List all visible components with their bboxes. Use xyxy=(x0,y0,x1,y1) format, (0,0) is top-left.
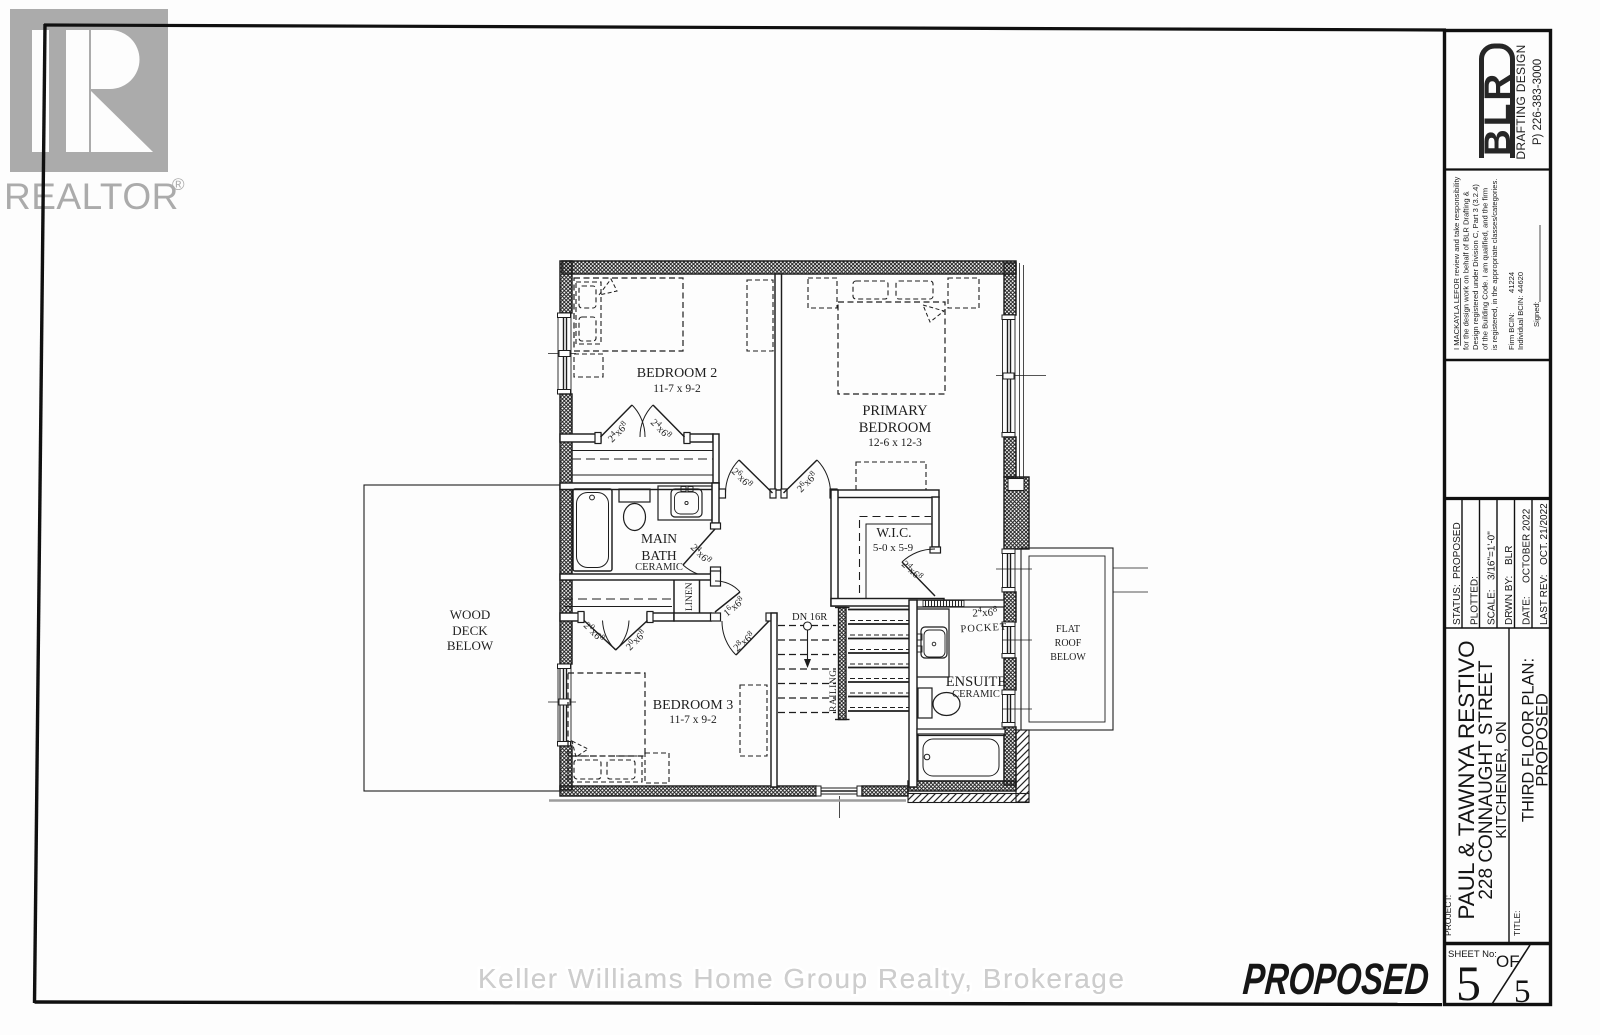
svg-text:OCT. 21/2022: OCT. 21/2022 xyxy=(1539,503,1550,565)
svg-text:of the Building Code. I am qua: of the Building Code. I am qualified, an… xyxy=(1481,188,1490,350)
svg-text:BATH: BATH xyxy=(641,548,677,563)
svg-text:41224: 41224 xyxy=(1507,272,1516,293)
svg-text:Design registered under Divisi: Design registered under Division C, Part… xyxy=(1471,184,1480,350)
svg-text:RAILING: RAILING xyxy=(829,669,839,712)
svg-text:for the design work on behalf: for the design work on behalf of BLR Dra… xyxy=(1462,191,1471,350)
svg-text:BEDROOM 3: BEDROOM 3 xyxy=(653,698,734,713)
svg-text:WOOD: WOOD xyxy=(450,607,490,622)
svg-text:26x68: 26x68 xyxy=(794,469,820,495)
svg-text:KITCHENER, ON: KITCHENER, ON xyxy=(1493,721,1510,839)
svg-text:BELOW: BELOW xyxy=(1050,652,1086,663)
svg-text:24x68: 24x68 xyxy=(648,416,674,442)
svg-text:DN 16R: DN 16R xyxy=(792,612,827,623)
svg-text:5: 5 xyxy=(1456,955,1481,1011)
svg-text:DECK: DECK xyxy=(452,623,488,638)
svg-text:SCALE:: SCALE: xyxy=(1487,589,1498,625)
svg-text:PLOTTED:: PLOTTED: xyxy=(1470,576,1481,625)
svg-text:Individual BCIN:: Individual BCIN: xyxy=(1516,296,1525,350)
svg-text:REALTOR: REALTOR xyxy=(4,176,179,217)
svg-text:BEDROOM 2: BEDROOM 2 xyxy=(637,366,718,381)
svg-text:W.I.C.: W.I.C. xyxy=(876,525,911,540)
svg-text:PROJECT:: PROJECT: xyxy=(1443,895,1453,936)
svg-text:OCTOBER 2022: OCTOBER 2022 xyxy=(1522,508,1533,583)
svg-text:44620: 44620 xyxy=(1516,272,1525,293)
svg-text:24x68: 24x68 xyxy=(605,419,631,445)
svg-text:I MACKAYLA LEFOR review and ta: I MACKAYLA LEFOR review and take respons… xyxy=(1452,176,1461,350)
svg-text:12-6 x 12-3: 12-6 x 12-3 xyxy=(868,437,922,449)
svg-text:Signed:: Signed: xyxy=(1532,301,1541,327)
svg-text:POCKET: POCKET xyxy=(960,622,1007,635)
svg-text:®: ® xyxy=(172,175,185,194)
svg-text:5-0 x 5-9: 5-0 x 5-9 xyxy=(873,542,914,554)
svg-text:PROPOSED: PROPOSED xyxy=(1241,956,1431,1005)
svg-text:FLAT: FLAT xyxy=(1056,624,1080,635)
svg-text:OF: OF xyxy=(1496,952,1520,971)
svg-text:ENSUITE: ENSUITE xyxy=(946,674,1007,690)
svg-text:ROOF: ROOF xyxy=(1055,638,1082,649)
svg-text:BELOW: BELOW xyxy=(447,638,494,653)
svg-text:PROPOSED: PROPOSED xyxy=(1533,693,1551,787)
svg-text:24x68: 24x68 xyxy=(688,541,714,567)
svg-text:STATUS:: STATUS: xyxy=(1452,584,1463,625)
svg-text:MAIN: MAIN xyxy=(641,531,677,546)
svg-text:28x68: 28x68 xyxy=(730,629,757,655)
svg-text:DATE:: DATE: xyxy=(1522,596,1533,625)
svg-text:CERAMIC: CERAMIC xyxy=(952,689,1000,700)
svg-text:Firm BCIN:: Firm BCIN: xyxy=(1507,312,1516,350)
svg-text:11-7 x 9-2: 11-7 x 9-2 xyxy=(669,714,717,726)
svg-text:LINEN: LINEN xyxy=(685,582,695,611)
svg-text:CERAMIC: CERAMIC xyxy=(635,562,683,573)
svg-text:BLR: BLR xyxy=(1504,546,1515,565)
svg-text:LAST REV:: LAST REV: xyxy=(1539,574,1550,625)
svg-text:DRWN BY:: DRWN BY: xyxy=(1504,576,1515,625)
svg-text:3/16"=1'-0": 3/16"=1'-0" xyxy=(1487,531,1498,580)
svg-text:20x68: 20x68 xyxy=(581,619,607,645)
svg-text:P) 226-383-3000: P) 226-383-3000 xyxy=(1532,59,1544,145)
svg-text:PRIMARY: PRIMARY xyxy=(862,403,928,419)
svg-text:DRAFTING DESIGN: DRAFTING DESIGN xyxy=(1514,44,1528,159)
svg-text:Keller Williams Home Group Rea: Keller Williams Home Group Realty, Broke… xyxy=(478,963,1125,994)
svg-text:11-7 x 9-2: 11-7 x 9-2 xyxy=(653,383,701,395)
svg-text:BEDROOM: BEDROOM xyxy=(859,420,932,436)
svg-text:5: 5 xyxy=(1514,974,1531,1010)
svg-text:TITLE:: TITLE: xyxy=(1512,910,1522,936)
svg-text:is registered, in the appropri: is registered, in the appropriate classe… xyxy=(1490,179,1499,350)
svg-text:PROPOSED: PROPOSED xyxy=(1452,522,1463,579)
